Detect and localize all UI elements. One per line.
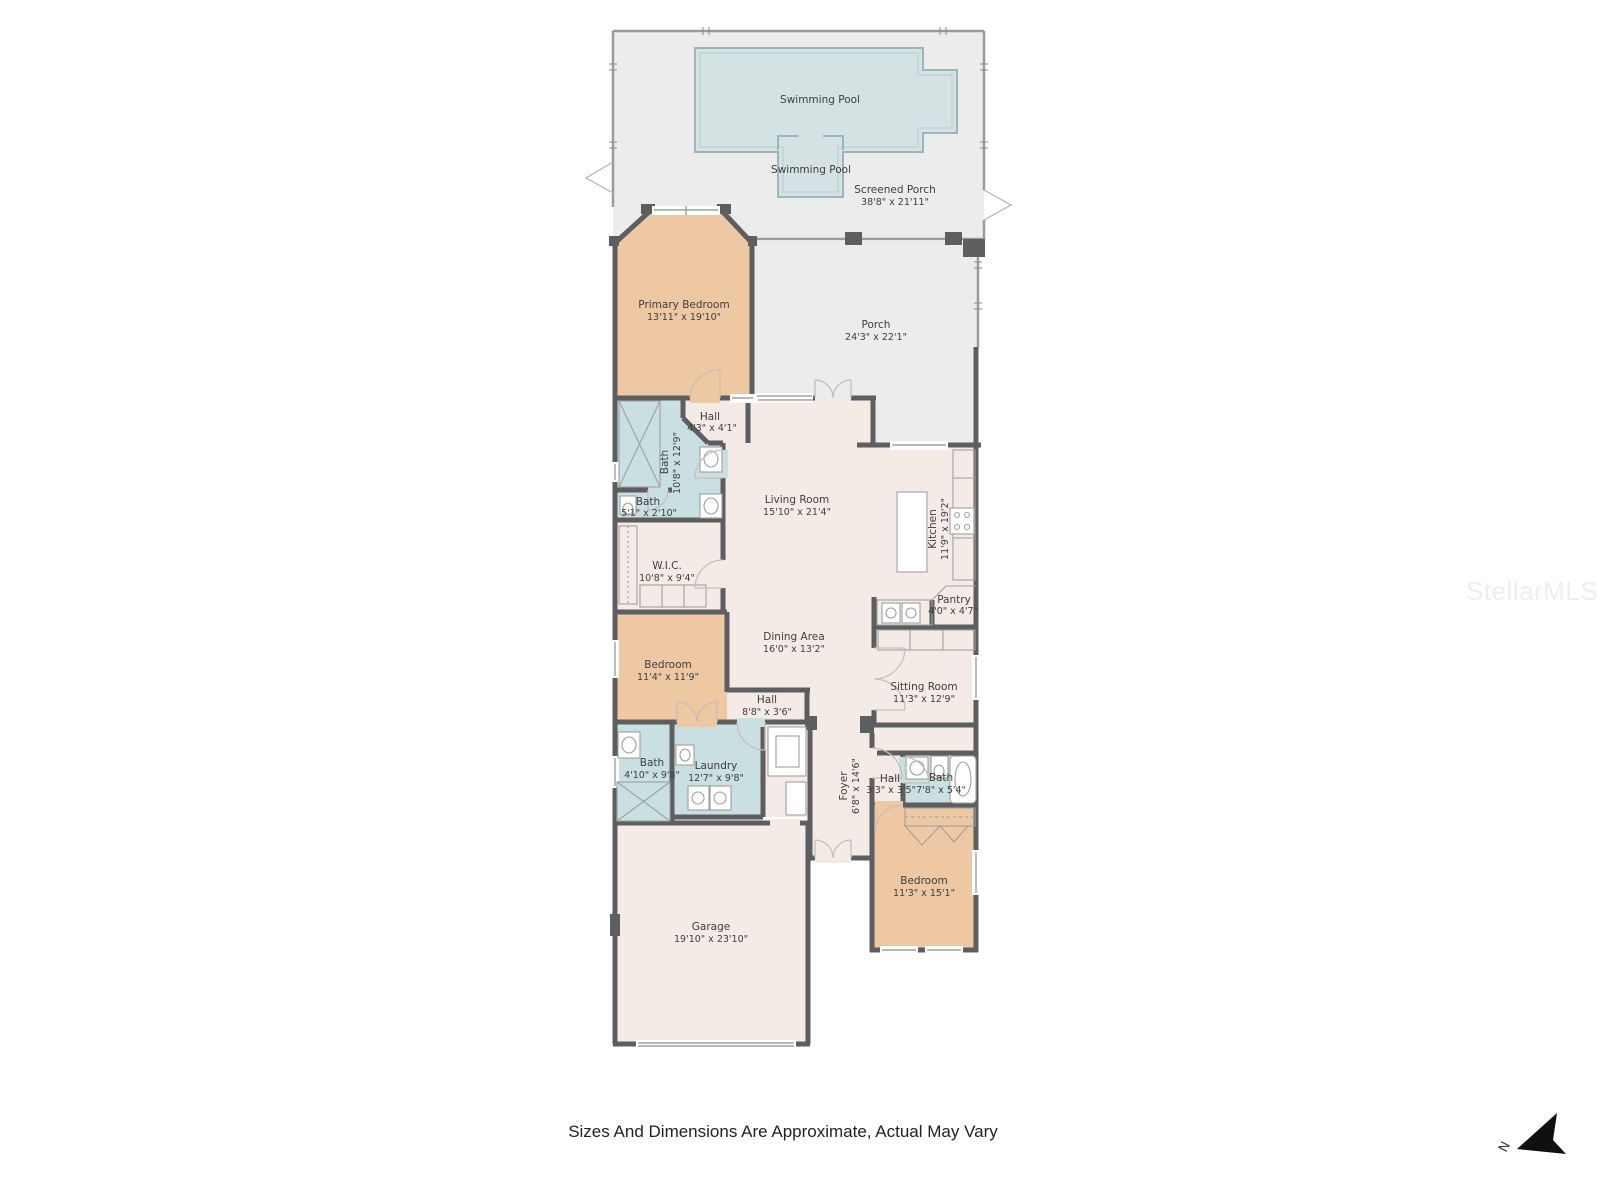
floor-plan: Swimming Pool Swimming Pool Screened Por… [0,0,1600,1200]
svg-text:6'8" x 14'6": 6'8" x 14'6" [851,758,862,814]
label-hall-mid: Hall [757,694,777,706]
closet [768,727,806,776]
svg-text:19'10" x 23'10": 19'10" x 23'10" [674,934,748,945]
label-sitting-room: Sitting Room [890,681,957,693]
appliance [882,603,900,623]
svg-text:11'4" x 11'9": 11'4" x 11'9" [637,672,699,683]
label-hall-rear: Hall [880,773,900,785]
svg-text:11'9" x 19'2": 11'9" x 19'2" [940,498,951,560]
label-primary-bedroom: Primary Bedroom [638,299,729,311]
sink [618,732,640,758]
label-bath-rear: Bath [929,772,953,784]
label-pantry: Pantry [937,594,971,606]
label-bath-toilet: Bath [636,496,660,508]
svg-text:4'3" x 4'1": 4'3" x 4'1" [687,423,737,434]
laundry-sink [676,745,694,765]
appliance [902,603,920,623]
label-bath-mid: Bath [640,757,664,769]
label-dining-area: Dining Area [763,631,824,643]
floor-plan-canvas: Swimming Pool Swimming Pool Screened Por… [0,0,1600,1200]
svg-text:8'8" x 3'6": 8'8" x 3'6" [742,707,792,718]
dryer [710,786,731,810]
svg-text:4'10" x 9'8": 4'10" x 9'8" [624,770,680,781]
label-screened-porch: Screened Porch [854,184,935,196]
svg-text:7'8" x 5'4": 7'8" x 5'4" [916,785,966,796]
svg-text:38'8" x 21'11": 38'8" x 21'11" [861,197,929,208]
kitchen-island [897,492,927,572]
label-foyer: Foyer [838,771,850,801]
closet [786,782,806,815]
svg-text:16'0" x 13'2": 16'0" x 13'2" [763,644,825,655]
label-bedroom-mid: Bedroom [644,659,692,671]
stellar-mls-watermark: StellarMLS [1466,576,1598,607]
label-garage: Garage [692,921,730,933]
svg-text:10'8" x 9'4": 10'8" x 9'4" [639,573,695,584]
label-porch: Porch [862,319,891,331]
label-bath-primary: Bath [659,450,671,474]
shower-mid [617,782,670,821]
svg-text:11'3" x 12'9": 11'3" x 12'9" [893,694,955,705]
range [950,508,974,534]
svg-text:10'8" x 12'9": 10'8" x 12'9" [672,432,683,494]
svg-text:4'0" x 4'7": 4'0" x 4'7" [928,606,978,617]
label-kitchen: Kitchen [927,509,939,548]
svg-text:13'11" x 19'10": 13'11" x 19'10" [647,312,721,323]
svg-text:3'3" x 3'5": 3'3" x 3'5" [866,785,916,796]
screen-door-right [984,190,1011,220]
label-pool-main: Swimming Pool [780,94,860,106]
svg-text:24'3" x 22'1": 24'3" x 22'1" [845,332,907,343]
disclaimer-text: Sizes And Dimensions Are Approximate, Ac… [0,1122,1566,1142]
washer [688,786,709,810]
label-hall-upper: Hall [700,411,720,423]
svg-text:12'7" x 9'8": 12'7" x 9'8" [688,773,744,784]
svg-text:15'10" x 21'4": 15'10" x 21'4" [763,507,831,518]
screen-door-left [586,162,613,193]
label-living-room: Living Room [765,494,829,506]
label-bedroom-rear: Bedroom [900,875,948,887]
label-wic: W.I.C. [652,560,682,572]
svg-text:11'3" x 15'1": 11'3" x 15'1" [893,888,955,899]
shower-primary [619,401,660,487]
svg-text:5'1" x 2'10": 5'1" x 2'10" [621,508,677,519]
label-pool-spa: Swimming Pool [771,164,851,176]
label-laundry: Laundry [695,760,738,772]
